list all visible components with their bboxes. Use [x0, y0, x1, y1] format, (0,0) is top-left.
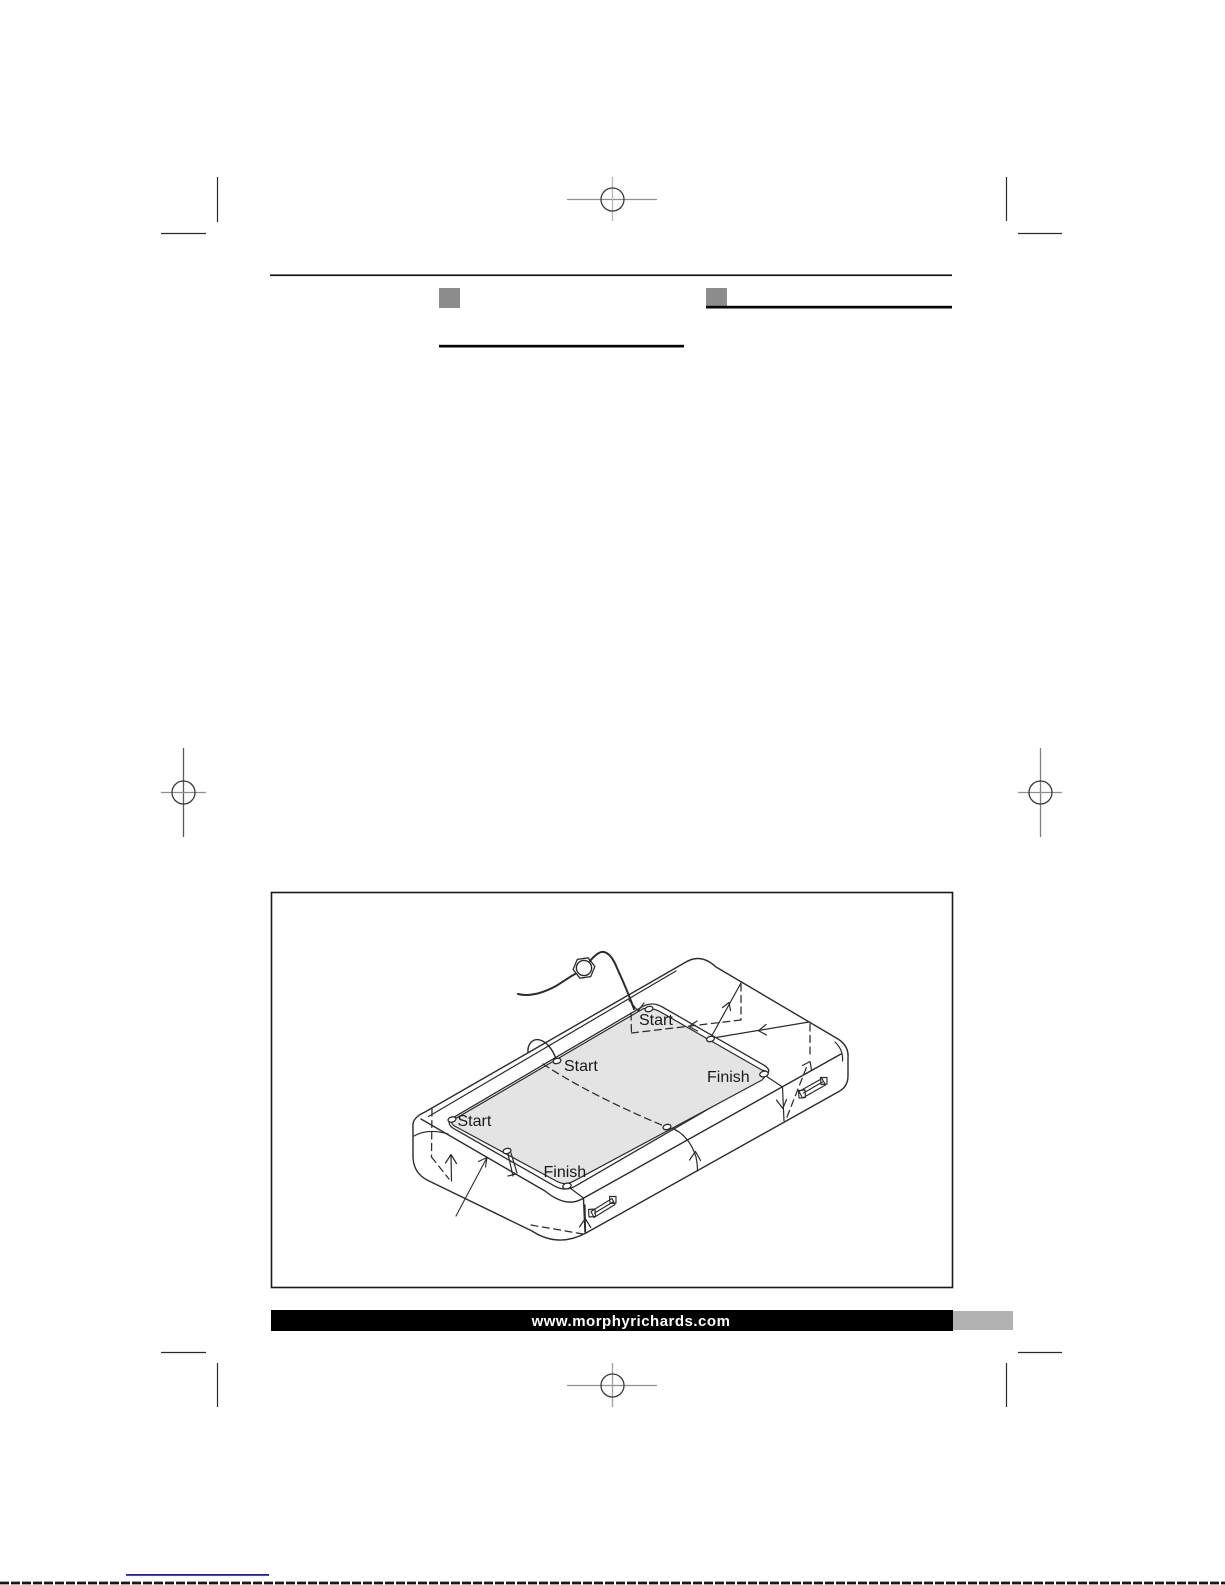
- svg-text:www.morphyrichards.com: www.morphyrichards.com: [531, 1313, 731, 1330]
- svg-text:Finish: Finish: [707, 1069, 750, 1086]
- svg-text:Start: Start: [564, 1058, 598, 1075]
- svg-text:Start: Start: [458, 1113, 492, 1130]
- svg-text:Start: Start: [639, 1012, 673, 1029]
- svg-text:Finish: Finish: [544, 1164, 587, 1181]
